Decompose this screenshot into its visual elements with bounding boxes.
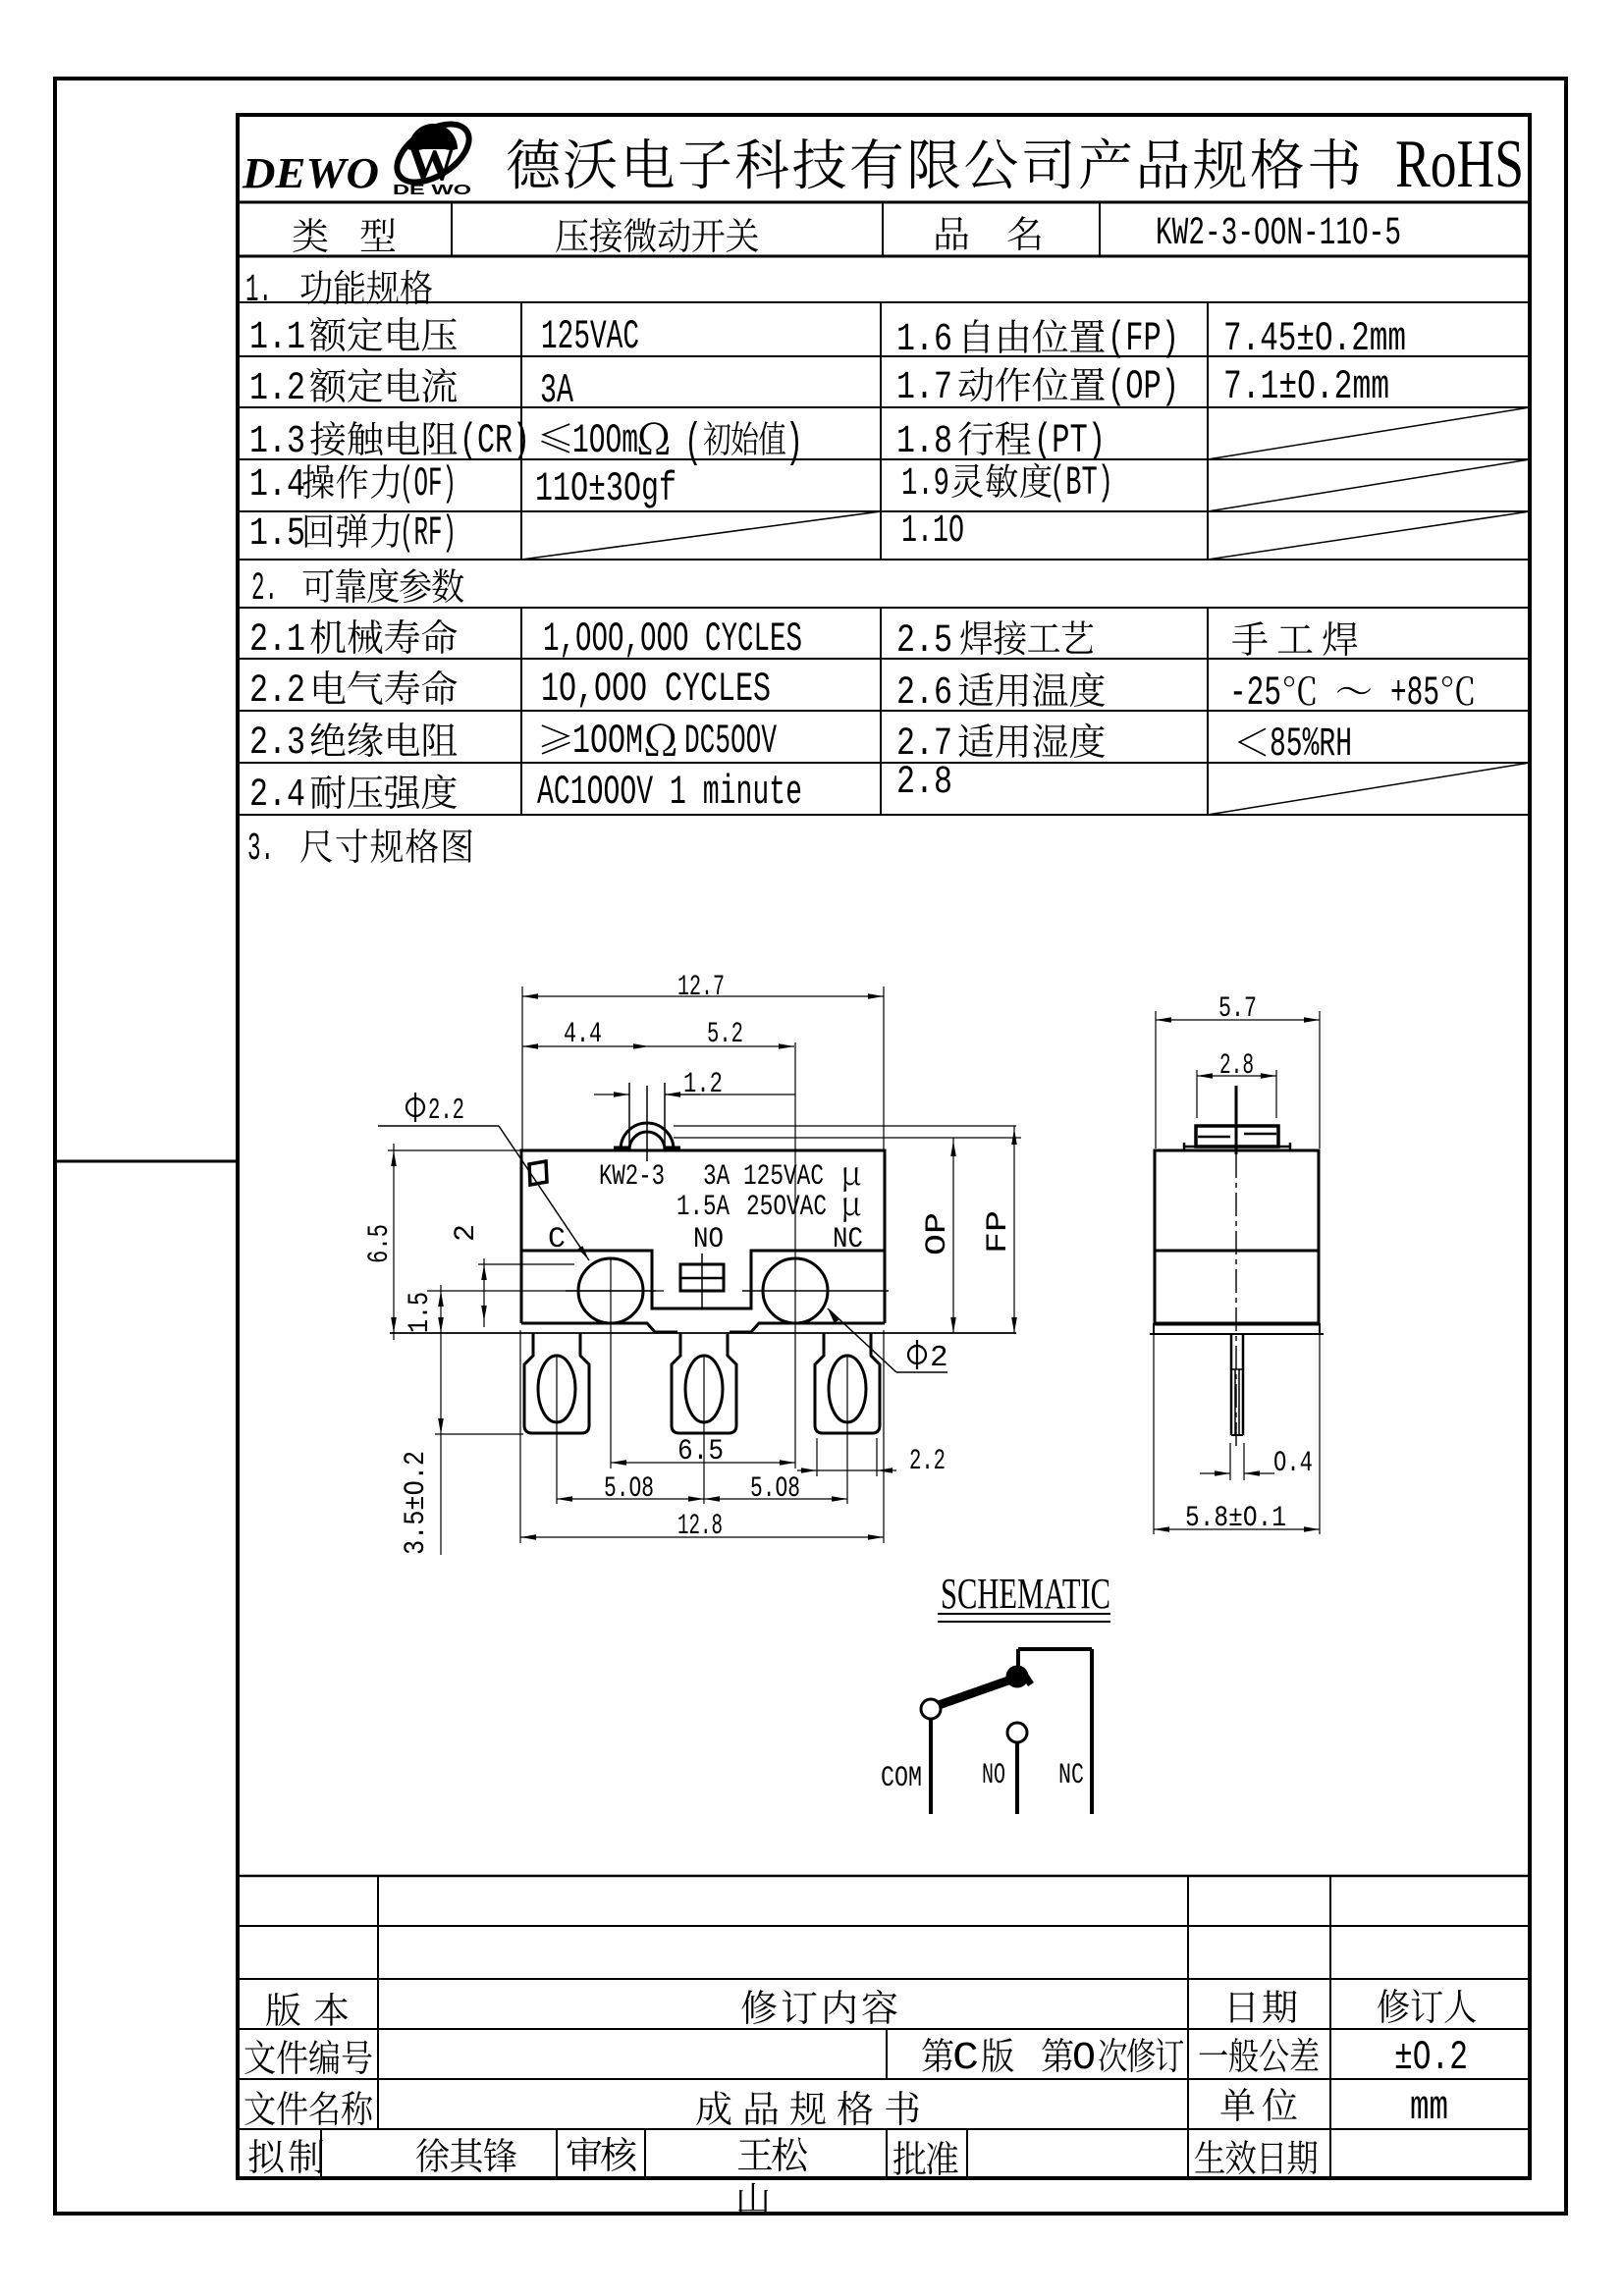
svg-text:(OP): (OP) bbox=[1108, 363, 1179, 410]
svg-text:): ) bbox=[785, 417, 803, 470]
svg-text:NC: NC bbox=[833, 1223, 863, 1256]
svg-text:±O.2: ±O.2 bbox=[1394, 2034, 1468, 2081]
svg-text:NO: NO bbox=[982, 1759, 1005, 1792]
svg-text:NC: NC bbox=[1058, 1759, 1084, 1792]
svg-text:6.5: 6.5 bbox=[677, 1435, 724, 1468]
svg-text:3.5±O.2: 3.5±O.2 bbox=[400, 1451, 433, 1555]
svg-text:7.1±O.2mm: 7.1±O.2mm bbox=[1223, 363, 1389, 410]
svg-text:DC5OOV: DC5OOV bbox=[684, 718, 777, 765]
svg-text:NO: NO bbox=[693, 1223, 724, 1256]
svg-text:125VAC: 125VAC bbox=[541, 313, 639, 360]
svg-text:mm: mm bbox=[1410, 2084, 1448, 2131]
svg-text:1OOM: 1OOM bbox=[572, 718, 643, 765]
svg-text:5.O8: 5.O8 bbox=[604, 1472, 654, 1506]
svg-text:2.8: 2.8 bbox=[896, 761, 952, 805]
svg-text:-25: -25 bbox=[1229, 669, 1281, 717]
svg-text:1.5: 1.5 bbox=[404, 1292, 437, 1333]
svg-text:1.2: 1.2 bbox=[249, 367, 305, 411]
svg-text:12.7: 12.7 bbox=[677, 971, 725, 1004]
svg-text:AC1OOOV 1 minute: AC1OOOV 1 minute bbox=[537, 769, 802, 816]
svg-text:2.2: 2.2 bbox=[428, 1094, 464, 1128]
svg-text:2.3: 2.3 bbox=[249, 721, 305, 766]
svg-text:1.5A: 1.5A bbox=[676, 1191, 730, 1224]
svg-text:1O,OOO CYCLES: 1O,OOO CYCLES bbox=[541, 666, 771, 713]
svg-text:O.4: O.4 bbox=[1273, 1447, 1313, 1480]
svg-text:3A: 3A bbox=[540, 367, 574, 414]
svg-text:7.45±O.2mm: 7.45±O.2mm bbox=[1223, 315, 1406, 362]
svg-text:SCHEMATIC: SCHEMATIC bbox=[941, 1570, 1110, 1618]
svg-text:(OF): (OF) bbox=[400, 460, 457, 507]
svg-text:2.: 2. bbox=[251, 567, 278, 612]
svg-text:C: C bbox=[952, 2037, 979, 2081]
svg-text:2.2: 2.2 bbox=[249, 669, 305, 714]
svg-text:2.8: 2.8 bbox=[1219, 1049, 1254, 1083]
svg-text:1.1O: 1.1O bbox=[901, 509, 964, 554]
svg-text:(RF): (RF) bbox=[400, 509, 457, 557]
svg-text:2.5: 2.5 bbox=[896, 619, 952, 664]
svg-text:12.8: 12.8 bbox=[677, 1510, 723, 1543]
svg-text:2.2: 2.2 bbox=[909, 1445, 946, 1478]
svg-text:(CR): (CR) bbox=[460, 417, 530, 464]
svg-text:1.6: 1.6 bbox=[896, 318, 952, 362]
svg-text:1.8: 1.8 bbox=[896, 420, 952, 464]
svg-text:85%RH: 85%RH bbox=[1270, 721, 1352, 768]
svg-text:(PT): (PT) bbox=[1034, 417, 1106, 464]
svg-text:2: 2 bbox=[450, 1224, 483, 1242]
svg-text:3.: 3. bbox=[247, 828, 274, 872]
svg-text:1.: 1. bbox=[245, 269, 272, 313]
svg-text:11O±3Ogf: 11O±3Ogf bbox=[535, 465, 676, 512]
svg-text:5.2: 5.2 bbox=[707, 1018, 743, 1051]
svg-text:DEWO: DEWO bbox=[242, 149, 379, 197]
svg-text:C: C bbox=[548, 1223, 566, 1256]
svg-text:(: ( bbox=[684, 417, 702, 470]
svg-text:DE WO: DE WO bbox=[393, 182, 472, 198]
svg-text:6.5: 6.5 bbox=[363, 1224, 397, 1263]
svg-text:5.7: 5.7 bbox=[1218, 992, 1257, 1026]
svg-text:COM: COM bbox=[881, 1762, 922, 1795]
svg-text:25OVAC: 25OVAC bbox=[746, 1191, 827, 1224]
svg-text:OP: OP bbox=[921, 1212, 954, 1255]
svg-text:(BT): (BT) bbox=[1050, 459, 1113, 507]
svg-text:1.5: 1.5 bbox=[249, 512, 305, 557]
svg-text:(FP): (FP) bbox=[1108, 315, 1179, 362]
svg-text:1OOm: 1OOm bbox=[572, 417, 638, 464]
svg-text:2.6: 2.6 bbox=[896, 671, 952, 716]
svg-text:2.4: 2.4 bbox=[249, 774, 305, 818]
svg-text:RoHS: RoHS bbox=[1395, 127, 1524, 202]
svg-text:5.8±O.1: 5.8±O.1 bbox=[1185, 1502, 1286, 1535]
svg-text:O: O bbox=[1072, 2037, 1096, 2081]
svg-text:5.O8: 5.O8 bbox=[750, 1472, 800, 1506]
svg-text:1.3: 1.3 bbox=[249, 420, 305, 464]
svg-text:1,OOO,OOO CYCLES: 1,OOO,OOO CYCLES bbox=[543, 615, 802, 663]
svg-text:2: 2 bbox=[930, 1341, 948, 1375]
svg-text:3A 125VAC: 3A 125VAC bbox=[703, 1160, 824, 1194]
svg-text:1.9: 1.9 bbox=[901, 462, 949, 507]
svg-text:2.1: 2.1 bbox=[249, 618, 305, 663]
svg-text:1.1: 1.1 bbox=[249, 316, 305, 360]
svg-text:KW2-3: KW2-3 bbox=[599, 1160, 665, 1194]
svg-text:FP: FP bbox=[982, 1210, 1015, 1254]
svg-text:1.7: 1.7 bbox=[896, 366, 952, 410]
svg-text:4.4: 4.4 bbox=[564, 1018, 602, 1051]
svg-text:1.4: 1.4 bbox=[249, 463, 305, 507]
svg-text:+85: +85 bbox=[1390, 669, 1439, 717]
svg-text:1.2: 1.2 bbox=[683, 1068, 723, 1101]
svg-text:KW2-3-OON-11O-5: KW2-3-OON-11O-5 bbox=[1156, 212, 1401, 256]
